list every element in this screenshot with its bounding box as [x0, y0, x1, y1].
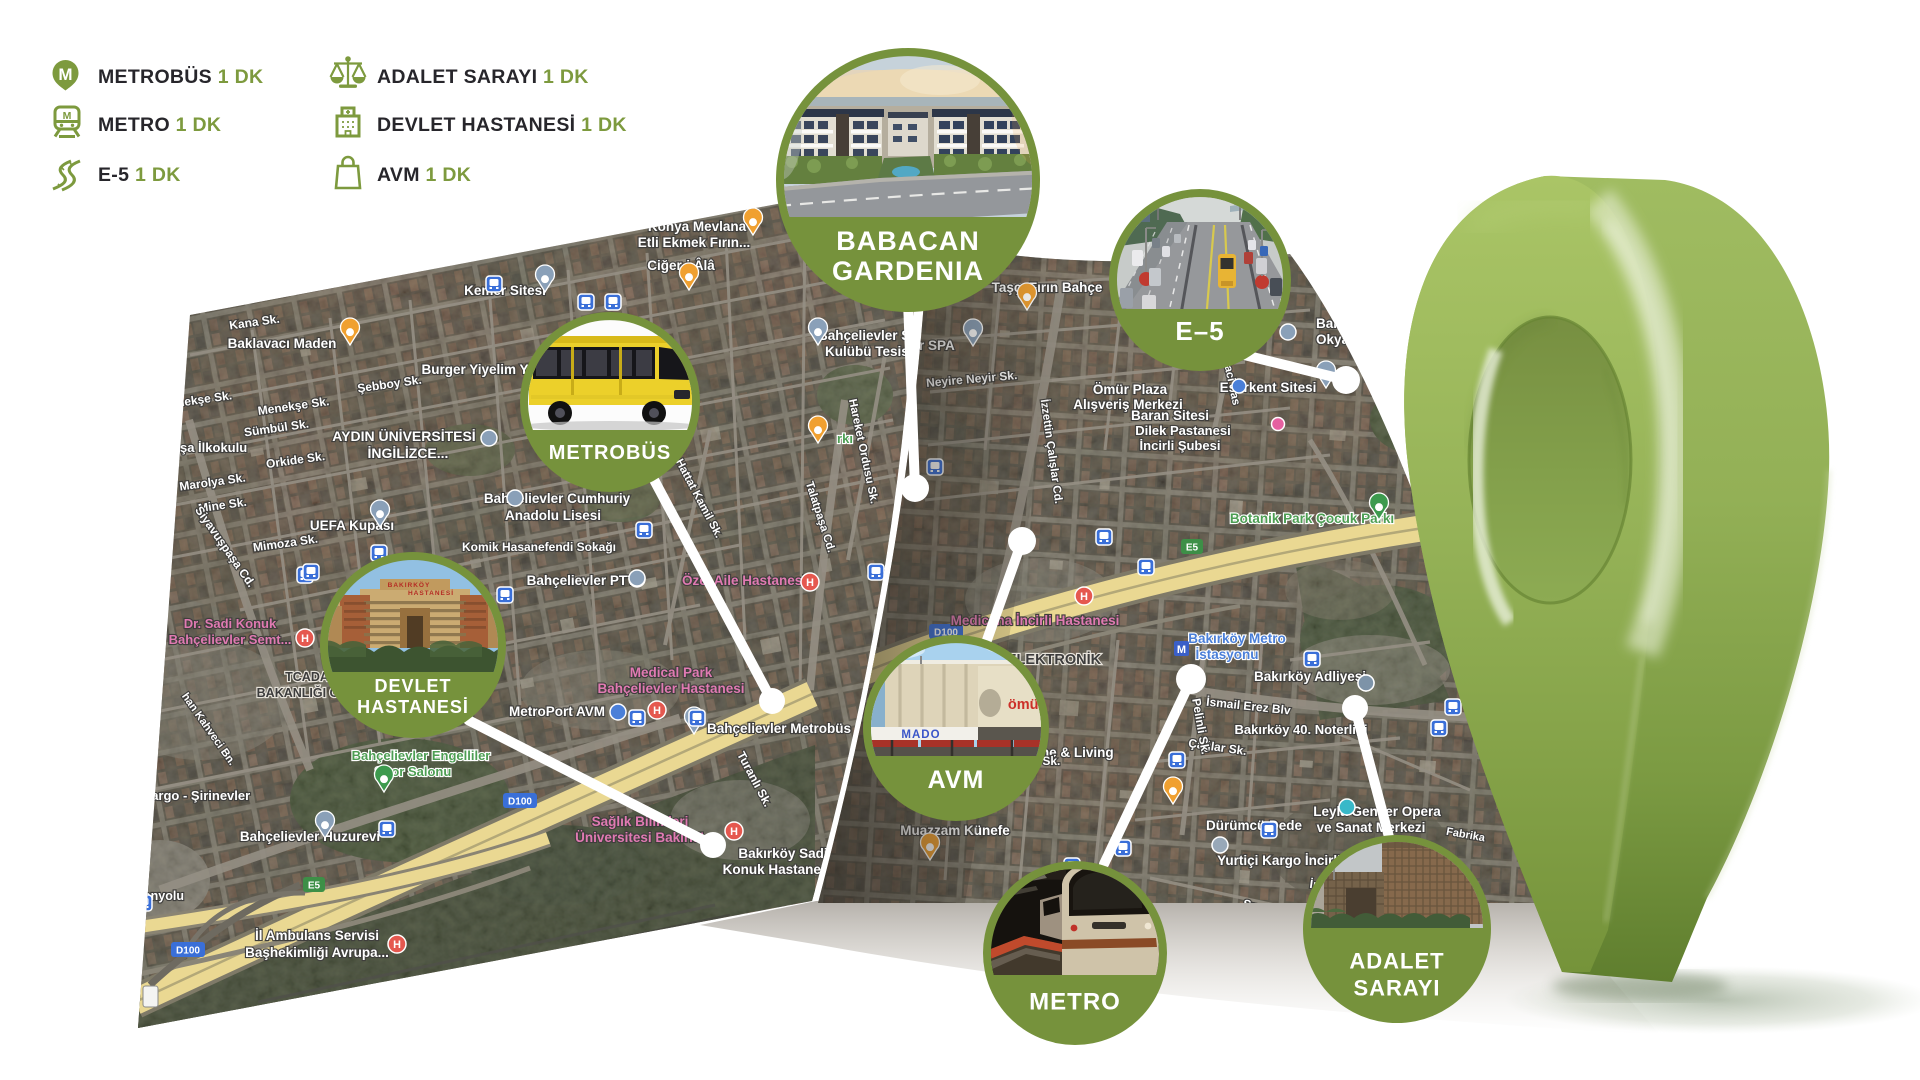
svg-text:Bahçelievler Cumhuriy: Bahçelievler Cumhuriy — [484, 491, 631, 506]
svg-text:H: H — [301, 633, 309, 645]
svg-text:METRO: METRO — [1029, 988, 1121, 1015]
svg-text:Başhekimliği Avrupa...: Başhekimliği Avrupa... — [245, 945, 389, 960]
svg-text:paşa İlkokulu: paşa İlkokulu — [165, 440, 247, 455]
svg-text:Bahçelievler Semt...: Bahçelievler Semt... — [169, 632, 292, 647]
svg-text:Bakırköy Metro: Bakırköy Metro — [1188, 631, 1286, 646]
svg-text:E5: E5 — [308, 881, 321, 892]
svg-text:Komik Hasanefendi Sokağı: Komik Hasanefendi Sokağı — [462, 540, 616, 554]
svg-text:Bakırköy Sadi: Bakırköy Sadi — [738, 846, 827, 861]
svg-text:D100: D100 — [176, 946, 200, 957]
svg-text:Kemer Sitesi: Kemer Sitesi — [464, 283, 546, 298]
svg-text:AVM 1 DK: AVM 1 DK — [377, 164, 471, 186]
svg-text:Bahçelievler Huzurevi: Bahçelievler Huzurevi — [240, 829, 380, 844]
svg-text:Bakırköy 40. Noterliği: Bakırköy 40. Noterliği — [1235, 722, 1368, 737]
svg-text:Kargo - Şirinevler: Kargo - Şirinevler — [142, 788, 250, 803]
svg-text:Etli Ekmek Fırın...: Etli Ekmek Fırın... — [638, 235, 751, 250]
svg-text:Burger Yiyelim Y: Burger Yiyelim Y — [421, 362, 528, 377]
svg-text:Bahçelievler Engelliler: Bahçelievler Engelliler — [352, 748, 491, 763]
svg-text:METROBÜS 1 DK: METROBÜS 1 DK — [98, 65, 263, 88]
svg-text:rkı: rkı — [837, 431, 853, 446]
svg-text:METRO 1 DK: METRO 1 DK — [98, 114, 221, 136]
svg-text:AYDIN ÜNİVERSİTESİ: AYDIN ÜNİVERSİTESİ — [332, 428, 475, 444]
svg-text:Ömür Plaza: Ömür Plaza — [1093, 382, 1168, 397]
svg-text:Medical Park: Medical Park — [630, 665, 713, 680]
svg-text:Okyanu: Okyanu — [1316, 332, 1366, 347]
svg-text:E-5 1 DK: E-5 1 DK — [98, 164, 181, 186]
svg-text:ve Sanat Merkezi: ve Sanat Merkezi — [1317, 820, 1426, 835]
svg-text:Konya Mevlana: Konya Mevlana — [648, 219, 747, 234]
svg-text:Bakırköy Adliyesi: Bakırköy Adliyesi — [1254, 669, 1366, 684]
svg-text:Dr. Sadi Konuk: Dr. Sadi Konuk — [184, 616, 277, 631]
svg-text:E5: E5 — [1186, 543, 1199, 554]
svg-text:Dürümcü Dede: Dürümcü Dede — [1206, 818, 1303, 833]
svg-text:Bahçelievler PTT: Bahçelievler PTT — [527, 573, 637, 588]
svg-text:ADALET SARAYI 1 DK: ADALET SARAYI 1 DK — [377, 66, 589, 88]
svg-text:İNGİLİZCE...: İNGİLİZCE... — [368, 445, 449, 461]
svg-text:Alışveriş Merkezi: Alışveriş Merkezi — [1073, 397, 1183, 412]
svg-text:BAKIRKÖY: BAKIRKÖY — [388, 580, 431, 589]
svg-text:Botanik Park Çocuk Parkı: Botanik Park Çocuk Parkı — [1230, 511, 1394, 526]
svg-text:M: M — [1177, 644, 1186, 656]
svg-text:DEVLET: DEVLET — [374, 676, 451, 696]
svg-text:MADO: MADO — [901, 729, 940, 741]
svg-text:Anadolu Lisesi: Anadolu Lisesi — [505, 508, 601, 523]
svg-text:M: M — [63, 110, 72, 122]
svg-text:Yanyolu: Yanyolu — [136, 889, 184, 903]
svg-text:H: H — [653, 705, 661, 717]
svg-text:H: H — [730, 826, 738, 838]
svg-text:GARDENIA: GARDENIA — [832, 256, 984, 286]
svg-text:H: H — [806, 577, 814, 589]
svg-text:Bahçelievler Spor: Bahçelievler Spor — [818, 328, 933, 343]
svg-text:Bahçelievler Metrobüs: Bahçelievler Metrobüs — [707, 721, 851, 736]
svg-text:Dilek Pastanesi: Dilek Pastanesi — [1135, 423, 1230, 438]
svg-text:E–5: E–5 — [1175, 316, 1224, 346]
svg-text:M: M — [58, 65, 72, 84]
svg-text:Bahçelievler Hastanesi: Bahçelievler Hastanesi — [597, 681, 744, 696]
svg-text:İl Ambulans Servisi: İl Ambulans Servisi — [255, 928, 379, 943]
svg-text:SARAYI: SARAYI — [1353, 976, 1440, 1001]
svg-text:DEVLET HASTANESİ 1 DK: DEVLET HASTANESİ 1 DK — [377, 113, 627, 136]
svg-text:ADALET: ADALET — [1349, 949, 1444, 974]
svg-text:İstasyonu: İstasyonu — [1195, 647, 1258, 662]
svg-text:HASTANESİ: HASTANESİ — [357, 697, 469, 717]
svg-text:Baklavacı Maden: Baklavacı Maden — [228, 336, 337, 351]
svg-text:HASTANESİ: HASTANESİ — [408, 589, 454, 597]
svg-text:BABACAN: BABACAN — [836, 226, 980, 256]
svg-text:D100: D100 — [508, 797, 532, 808]
svg-text:AVM: AVM — [928, 766, 985, 794]
svg-text:Bahçe: Bahçe — [1316, 316, 1357, 331]
svg-text:H: H — [393, 939, 401, 951]
svg-text:Konuk Hastanesi...: Konuk Hastanesi... — [723, 862, 844, 877]
svg-text:Yurtiçi Kargo İncirli: Yurtiçi Kargo İncirli — [1217, 853, 1341, 868]
svg-text:MetroPort AVM: MetroPort AVM — [509, 704, 605, 719]
svg-text:TCADA: TCADA — [285, 670, 329, 684]
svg-text:İncirli Şubesi: İncirli Şubesi — [1140, 438, 1221, 453]
svg-text:METROBÜS: METROBÜS — [549, 441, 671, 464]
svg-text:H: H — [1080, 591, 1088, 603]
